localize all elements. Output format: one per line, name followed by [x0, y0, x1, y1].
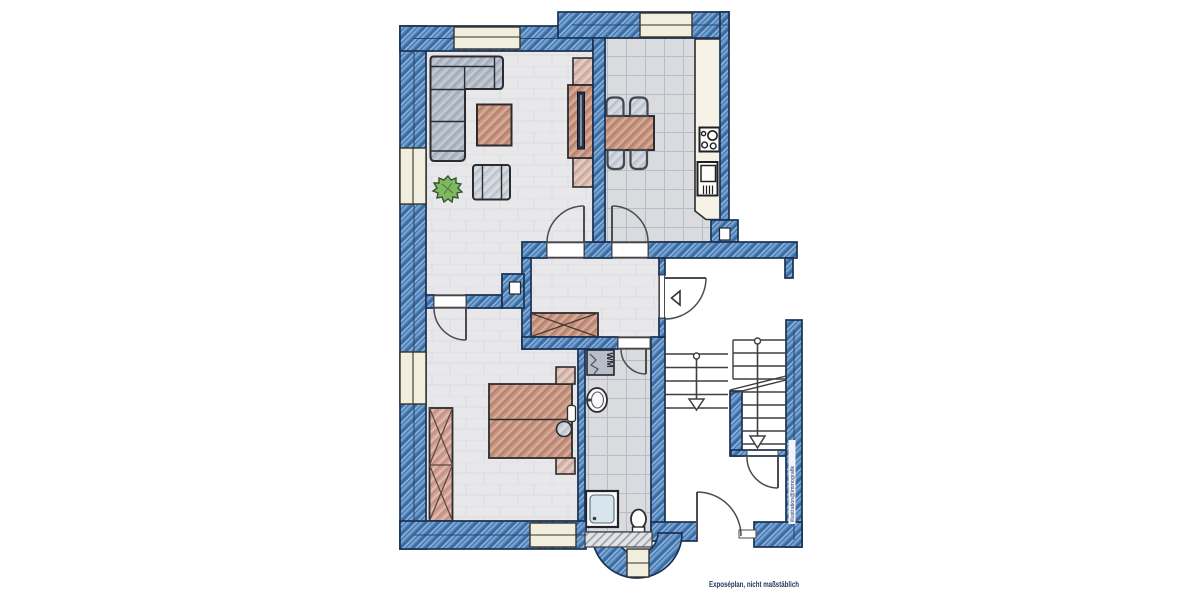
svg-text:WM: WM [605, 353, 615, 368]
svg-text:Exposéplan, nicht maßstäblich: Exposéplan, nicht maßstäblich [709, 580, 799, 589]
svg-text:illustration@immografik: illustration@immografik [790, 466, 796, 522]
